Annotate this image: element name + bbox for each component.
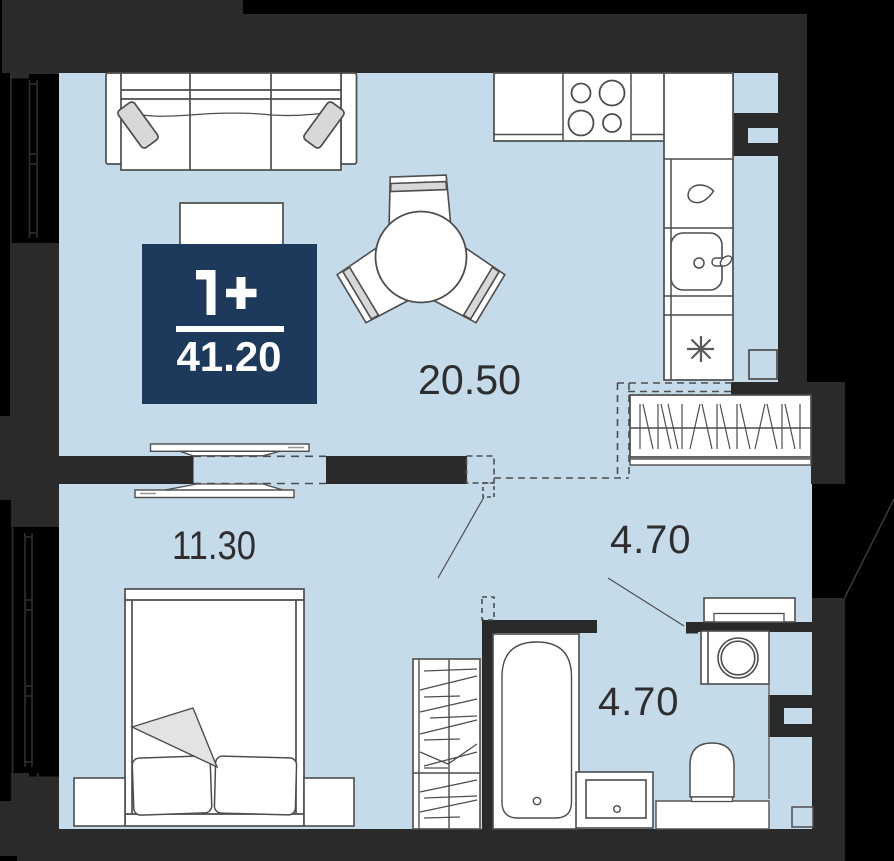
svg-text:11.30: 11.30 [172, 524, 256, 568]
svg-text:4.70: 4.70 [598, 680, 679, 724]
svg-text:41.20: 41.20 [176, 333, 281, 380]
svg-text:4.70: 4.70 [610, 518, 691, 562]
svg-text:20.50: 20.50 [418, 356, 521, 403]
